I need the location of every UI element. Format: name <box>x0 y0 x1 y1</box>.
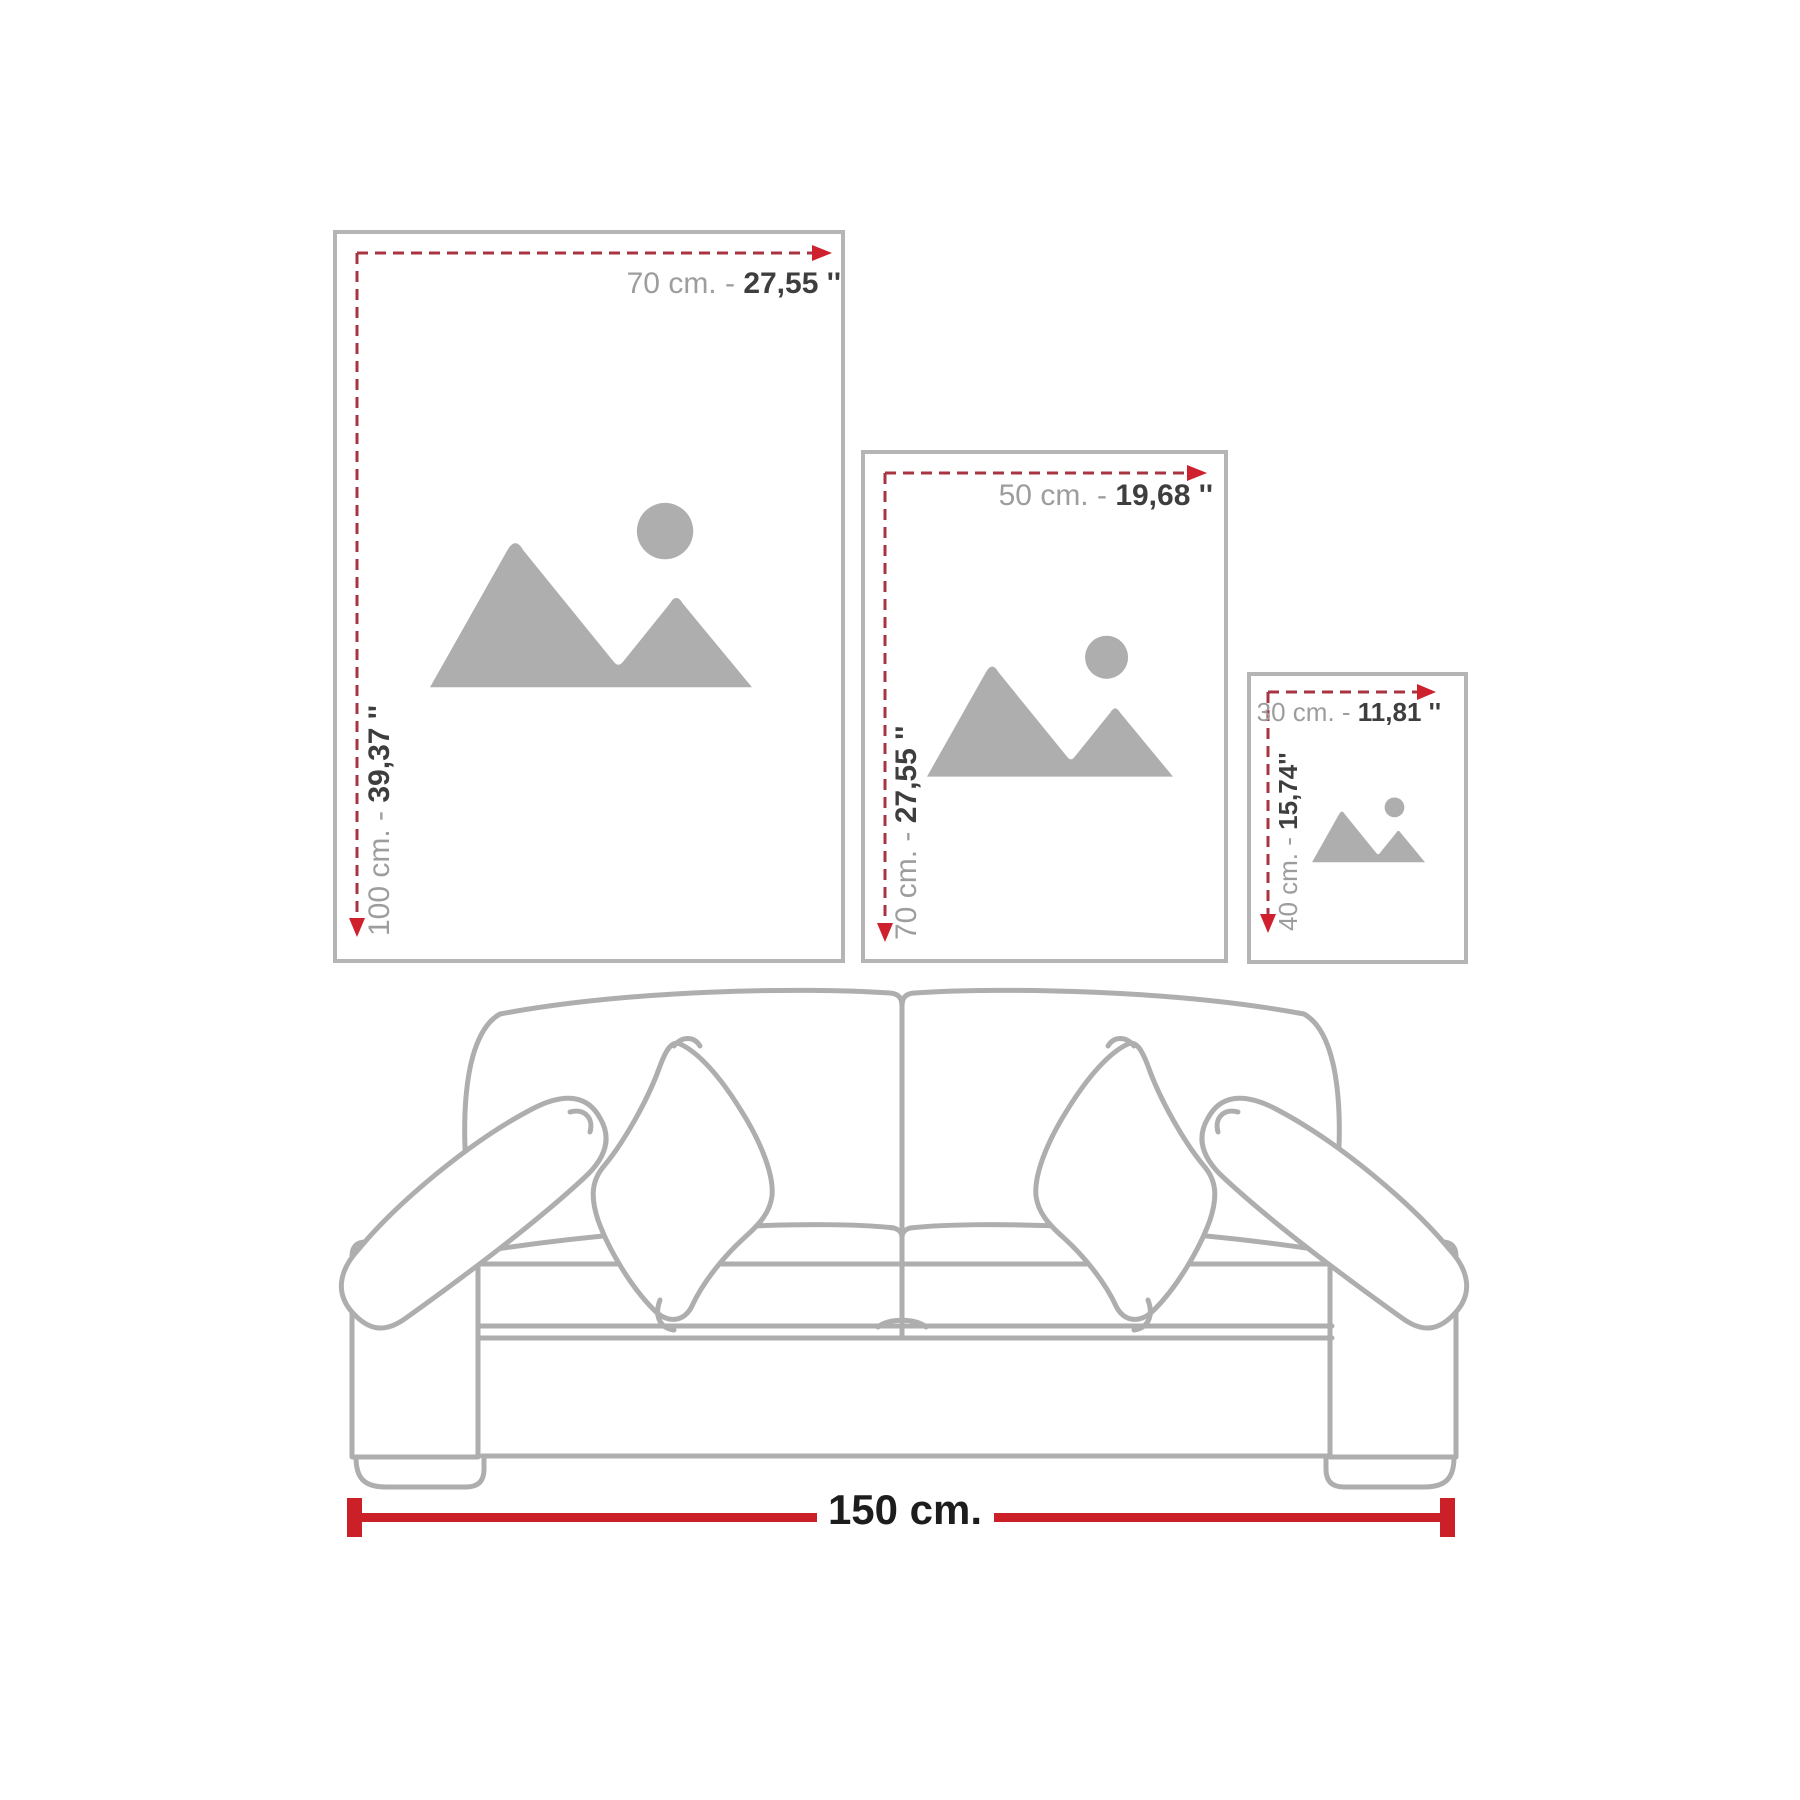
height-cm-value: 70 cm. - <box>890 823 923 940</box>
sofa-width-label: 150 cm. <box>795 1486 1015 1534</box>
width-inch-value: 27,55 '' <box>743 267 841 300</box>
measurement-bar-left <box>362 1513 817 1522</box>
size-comparison-diagram: 70 cm. - 27,55 '' 100 cm. - 39,37 '' 50 … <box>0 0 1800 1800</box>
height-cm-value: 40 cm. - <box>1273 830 1303 931</box>
frame-small-width-label: 30 cm. - 11,81 '' <box>1257 698 1441 726</box>
frame-medium-dimension-arrows <box>873 460 1223 960</box>
width-cm-value: 50 cm. - <box>999 479 1116 512</box>
width-cm-value: 70 cm. - <box>627 267 744 300</box>
width-cm-value: 30 cm. - <box>1257 697 1358 727</box>
measurement-end-cap-left <box>347 1498 362 1537</box>
frame-medium-height-label: 70 cm. - 27,55 '' <box>891 726 923 940</box>
height-inch-value: 39,37 '' <box>363 705 396 803</box>
width-inch-value: 11,81 '' <box>1358 697 1441 727</box>
sofa-illustration <box>330 980 1480 1510</box>
measurement-bar-right <box>994 1513 1440 1522</box>
width-inch-value: 19,68 '' <box>1115 479 1213 512</box>
measurement-end-cap-right <box>1440 1498 1455 1537</box>
frame-small-height-label: 40 cm. - 15,74'' <box>1274 752 1302 931</box>
frame-large-width-label: 70 cm. - 27,55 '' <box>627 268 841 300</box>
frame-medium-width-label: 50 cm. - 19,68 '' <box>999 480 1213 512</box>
frame-large-dimension-arrows <box>345 240 850 955</box>
frame-large-height-label: 100 cm. - 39,37 '' <box>364 705 396 936</box>
height-cm-value: 100 cm. - <box>363 803 396 936</box>
height-inch-value: 15,74'' <box>1273 752 1303 829</box>
height-inch-value: 27,55 '' <box>890 726 923 824</box>
